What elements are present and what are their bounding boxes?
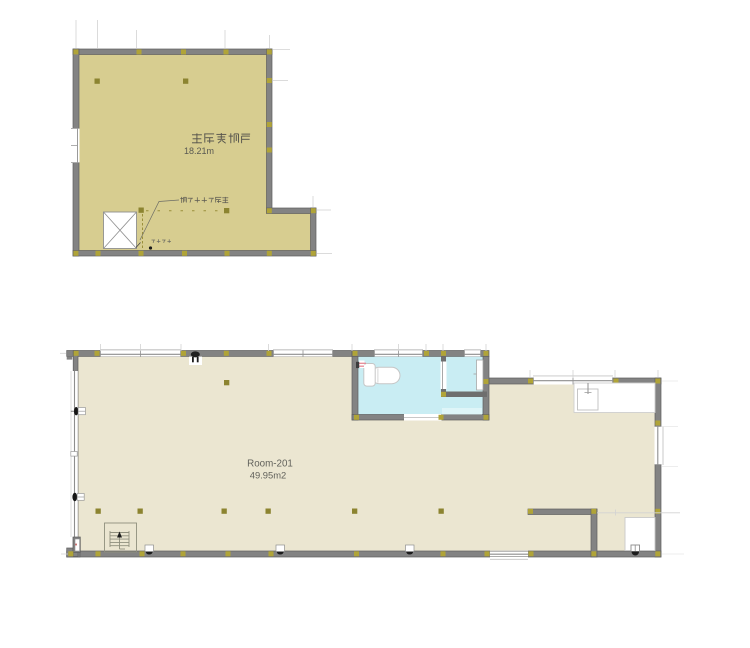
svg-text:49.95m2: 49.95m2 — [250, 470, 286, 481]
svg-text:18.21m: 18.21m — [184, 146, 214, 156]
svg-text:Room-201: Room-201 — [247, 459, 293, 470]
